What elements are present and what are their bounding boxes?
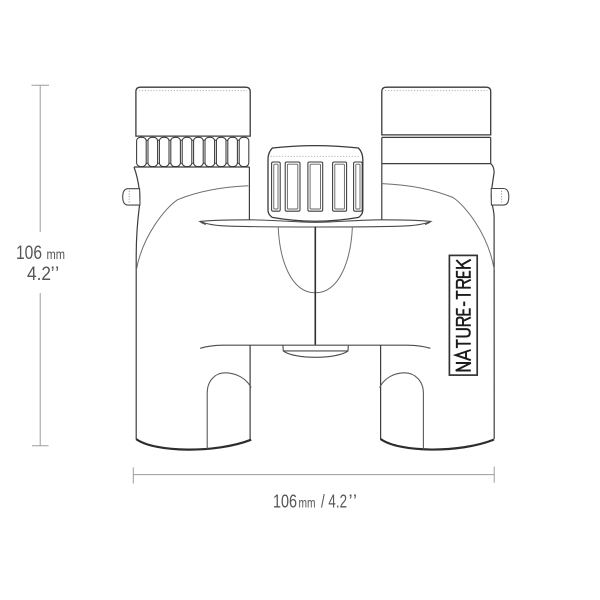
svg-text:’’: ’’ xyxy=(51,264,60,285)
svg-text:106: 106 xyxy=(273,491,297,512)
svg-text:/ 4.2: / 4.2 xyxy=(321,491,347,512)
svg-text:’’: ’’ xyxy=(349,491,358,512)
svg-text:mm: mm xyxy=(47,246,66,262)
svg-text:mm: mm xyxy=(299,495,316,511)
svg-text:4.2: 4.2 xyxy=(27,264,51,285)
svg-text:106: 106 xyxy=(16,243,42,264)
